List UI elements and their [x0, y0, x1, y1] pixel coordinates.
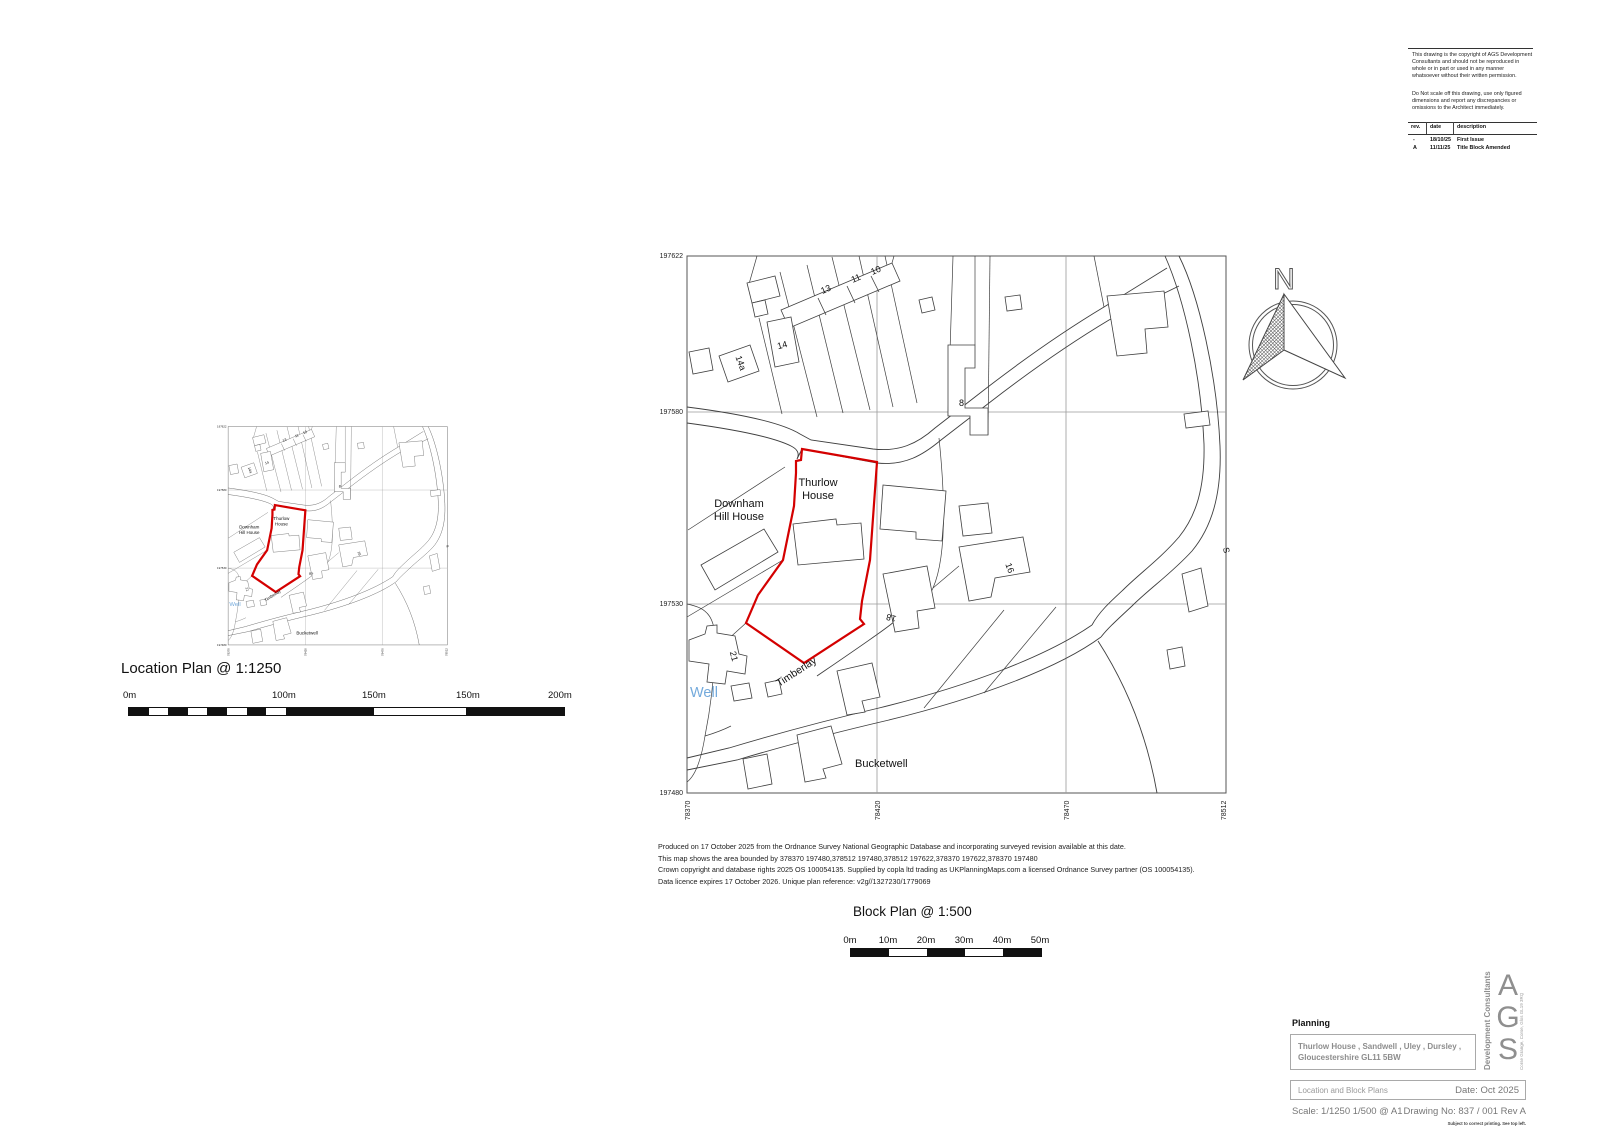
location-scale-label-0: 0m	[123, 690, 136, 701]
north-letter: N	[1273, 263, 1295, 296]
location-plan-title: Location Plan @ 1:1250	[121, 660, 281, 677]
location-plan-map	[209, 420, 453, 656]
location-scale-label-4: 200m	[548, 690, 572, 701]
rev-row1-description: First Issue	[1457, 137, 1484, 143]
block-scale-label-1: 10m	[879, 935, 897, 946]
rev-row2-date: 11/11/25	[1430, 145, 1450, 151]
logo-side-text: Development Consultants	[1483, 971, 1492, 1070]
project-address-line2: Gloucestershire GL11 5BW	[1298, 1052, 1475, 1063]
block-plan-title: Block Plan @ 1:500	[853, 904, 972, 919]
os-attribution-line4: Data licence expires 17 October 2026. Un…	[658, 876, 1195, 888]
drawing-sheet: { "copyright_block": { "para1": "This dr…	[0, 0, 1600, 1130]
rev-table-top-rule	[1408, 122, 1537, 123]
compass-wing-left	[1243, 294, 1284, 380]
os-attribution: Produced on 17 October 2025 from the Ord…	[658, 841, 1195, 887]
os-attribution-line2: This map shows the area bounded by 37837…	[658, 853, 1195, 865]
rev-table-header-date: date	[1430, 124, 1441, 130]
rev-table-header-rev: rev.	[1411, 124, 1420, 130]
os-attribution-line1: Produced on 17 October 2025 from the Ord…	[658, 841, 1195, 853]
location-scale-label-3: 150m	[456, 690, 480, 701]
rev-row2-description: Title Block Amended	[1457, 145, 1510, 151]
location-scale-label-1: 100m	[272, 690, 296, 701]
print-note: Subject to correct printing. See top lef…	[1448, 1121, 1526, 1126]
block-scale-label-5: 50m	[1031, 935, 1049, 946]
block-scale-label-2: 20m	[917, 935, 935, 946]
rev-table-separator-1	[1426, 122, 1427, 134]
location-scale-label-2: 150m	[362, 690, 386, 701]
no-scale-paragraph: Do Not scale off this drawing, use only …	[1412, 91, 1533, 112]
logo-address-text: Corse Grange, Corse, Glos GL19 3RQ	[1519, 993, 1524, 1070]
os-attribution-line3: Crown copyright and database rights 2025…	[658, 864, 1195, 876]
rev-table-header-rule	[1408, 134, 1537, 135]
north-arrow: N	[1240, 250, 1352, 392]
block-scale-label-0: 0m	[843, 935, 856, 946]
rev-row2-rev: A	[1413, 145, 1417, 151]
block-plan-map	[640, 240, 1240, 820]
rev-row1-date: 18/10/25	[1430, 137, 1451, 143]
block-scale-label-3: 30m	[955, 935, 973, 946]
drawing-title-box: Location and Block Plans Date: Oct 2025	[1290, 1080, 1526, 1100]
drawing-date: Date: Oct 2025	[1455, 1085, 1519, 1096]
logo-letter-g: G	[1494, 1002, 1522, 1034]
copyright-divider	[1408, 48, 1533, 49]
location-scale-bar	[128, 707, 565, 716]
logo-letters: A G S	[1494, 970, 1522, 1066]
rev-table-separator-2	[1453, 122, 1454, 134]
drawing-number: Drawing No: 837 / 001 Rev A	[1403, 1106, 1526, 1117]
project-address-box: Thurlow House , Sandwell , Uley , Dursle…	[1290, 1034, 1476, 1070]
logo-letter-s: S	[1494, 1034, 1522, 1066]
section-label: Planning	[1292, 1018, 1330, 1028]
copyright-paragraph: This drawing is the copyright of AGS Dev…	[1412, 52, 1533, 80]
block-scale-bar	[850, 948, 1042, 957]
drawing-scale: Scale: 1/1250 1/500 @ A1	[1292, 1106, 1403, 1117]
logo-letter-a: A	[1494, 970, 1522, 1002]
rev-table-header-description: description	[1457, 124, 1486, 130]
block-scale-label-4: 40m	[993, 935, 1011, 946]
rev-row1-rev: -	[1413, 137, 1415, 143]
project-address-line1: Thurlow House , Sandwell , Uley , Dursle…	[1298, 1041, 1475, 1052]
drawing-title: Location and Block Plans	[1298, 1086, 1388, 1095]
